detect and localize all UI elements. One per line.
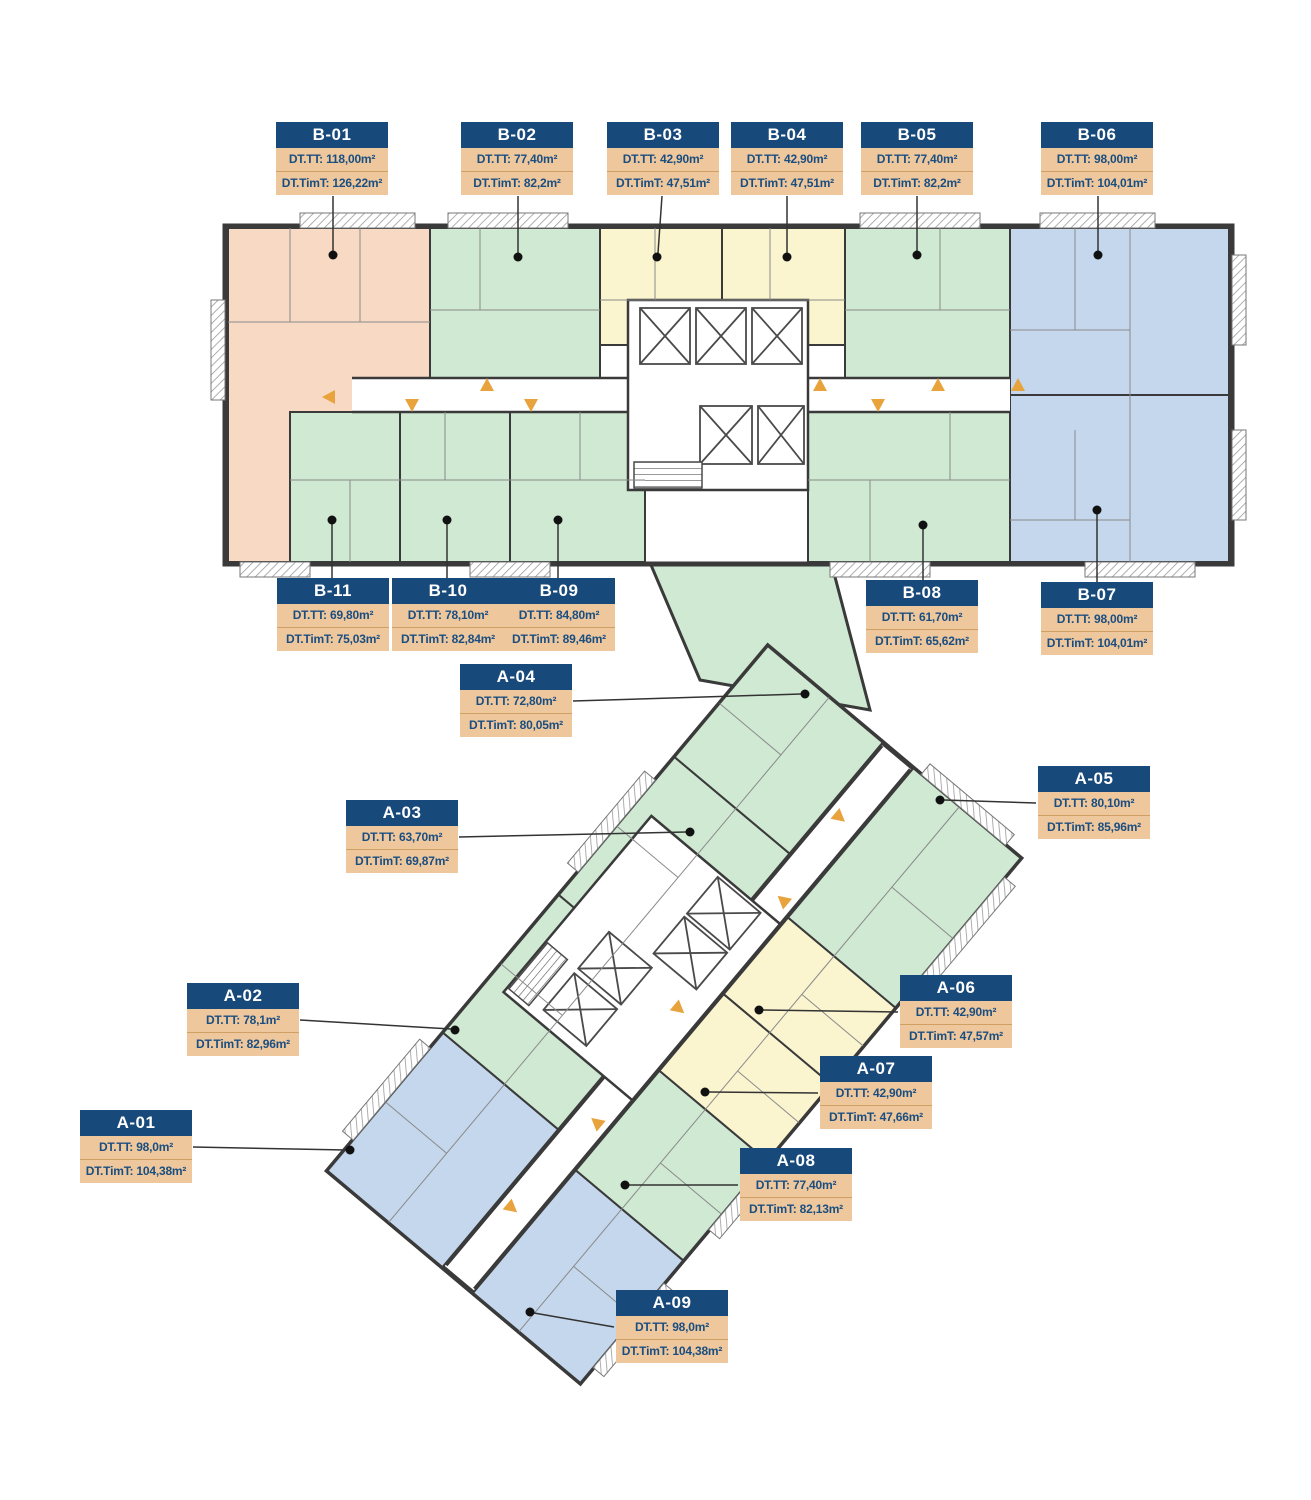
unit-area-tim: DT.TimT: 126,22m²: [276, 171, 388, 195]
unit-area-tim: DT.TimT: 82,96m²: [187, 1032, 299, 1056]
unit-area-tim: DT.TimT: 104,01m²: [1041, 631, 1153, 655]
unit-label-a04: A-04 DT.TT: 72,80m² DT.TimT: 80,05m²: [460, 664, 572, 737]
unit-label-b09: B-09 DT.TT: 84,80m² DT.TimT: 89,46m²: [503, 578, 615, 651]
unit-area-tt: DT.TT: 77,40m²: [861, 148, 973, 171]
unit-id: B-06: [1041, 122, 1153, 148]
stairs-area-b: [634, 462, 702, 488]
unit-area-tim: DT.TimT: 104,38m²: [616, 1339, 728, 1363]
unit-area-tt: DT.TT: 42,90m²: [731, 148, 843, 171]
unit-label-b08: B-08 DT.TT: 61,70m² DT.TimT: 65,62m²: [866, 580, 978, 653]
unit-area-tim: DT.TimT: 89,46m²: [503, 627, 615, 651]
unit-area-tim: DT.TimT: 69,87m²: [346, 849, 458, 873]
unit-shape-b07: [1010, 395, 1229, 562]
unit-area-tt: DT.TT: 98,00m²: [1041, 148, 1153, 171]
unit-area-tt: DT.TT: 98,0m²: [616, 1316, 728, 1339]
unit-shape-b10: [400, 412, 510, 562]
unit-area-tim: DT.TimT: 75,03m²: [277, 627, 389, 651]
unit-id: A-05: [1038, 766, 1150, 792]
unit-area-tt: DT.TT: 80,10m²: [1038, 792, 1150, 815]
unit-area-tim: DT.TimT: 82,2m²: [461, 171, 573, 195]
unit-label-a01: A-01 DT.TT: 98,0m² DT.TimT: 104,38m²: [80, 1110, 192, 1183]
unit-label-a09: A-09 DT.TT: 98,0m² DT.TimT: 104,38m²: [616, 1290, 728, 1363]
unit-area-tim: DT.TimT: 47,51m²: [731, 171, 843, 195]
unit-id: B-10: [392, 578, 504, 604]
unit-id: A-02: [187, 983, 299, 1009]
unit-area-tt: DT.TT: 78,10m²: [392, 604, 504, 627]
unit-id: A-08: [740, 1148, 852, 1174]
unit-shape-b06: [1010, 228, 1229, 395]
unit-area-tt: DT.TT: 42,90m²: [820, 1082, 932, 1105]
unit-shape-b09: [510, 412, 645, 562]
floor-plan-page: B-01 DT.TT: 118,00m² DT.TimT: 126,22m² B…: [0, 0, 1311, 1500]
elevator-core-b: [628, 300, 808, 490]
unit-label-b06: B-06 DT.TT: 98,00m² DT.TimT: 104,01m²: [1041, 122, 1153, 195]
unit-id: B-01: [276, 122, 388, 148]
unit-area-tt: DT.TT: 118,00m²: [276, 148, 388, 171]
unit-label-b01: B-01 DT.TT: 118,00m² DT.TimT: 126,22m²: [276, 122, 388, 195]
unit-area-tim: DT.TimT: 82,84m²: [392, 627, 504, 651]
unit-area-tt: DT.TT: 98,0m²: [80, 1136, 192, 1159]
unit-id: A-09: [616, 1290, 728, 1316]
unit-label-b11: B-11 DT.TT: 69,80m² DT.TimT: 75,03m²: [277, 578, 389, 651]
unit-shape-b11: [290, 412, 400, 562]
unit-label-b04: B-04 DT.TT: 42,90m² DT.TimT: 47,51m²: [731, 122, 843, 195]
unit-id: B-05: [861, 122, 973, 148]
unit-area-tim: DT.TimT: 85,96m²: [1038, 815, 1150, 839]
unit-id: B-11: [277, 578, 389, 604]
unit-id: B-08: [866, 580, 978, 606]
unit-shape-b02: [430, 228, 600, 378]
unit-id: B-07: [1041, 582, 1153, 608]
unit-label-a05: A-05 DT.TT: 80,10m² DT.TimT: 85,96m²: [1038, 766, 1150, 839]
unit-id: B-09: [503, 578, 615, 604]
block-b: [211, 213, 1246, 577]
unit-area-tt: DT.TT: 63,70m²: [346, 826, 458, 849]
unit-id: B-02: [461, 122, 573, 148]
unit-id: B-03: [607, 122, 719, 148]
unit-area-tim: DT.TimT: 80,05m²: [460, 713, 572, 737]
unit-area-tt: DT.TT: 98,00m²: [1041, 608, 1153, 631]
unit-area-tt: DT.TT: 69,80m²: [277, 604, 389, 627]
unit-area-tt: DT.TT: 78,1m²: [187, 1009, 299, 1032]
unit-area-tt: DT.TT: 42,90m²: [607, 148, 719, 171]
unit-label-b03: B-03 DT.TT: 42,90m² DT.TimT: 47,51m²: [607, 122, 719, 195]
unit-label-b10: B-10 DT.TT: 78,10m² DT.TimT: 82,84m²: [392, 578, 504, 651]
unit-area-tim: DT.TimT: 104,38m²: [80, 1159, 192, 1183]
unit-area-tt: DT.TT: 61,70m²: [866, 606, 978, 629]
unit-id: A-06: [900, 975, 1012, 1001]
unit-area-tt: DT.TT: 84,80m²: [503, 604, 615, 627]
unit-area-tt: DT.TT: 42,90m²: [900, 1001, 1012, 1024]
unit-label-a02: A-02 DT.TT: 78,1m² DT.TimT: 82,96m²: [187, 983, 299, 1056]
unit-area-tt: DT.TT: 72,80m²: [460, 690, 572, 713]
unit-id: A-03: [346, 800, 458, 826]
unit-area-tim: DT.TimT: 65,62m²: [866, 629, 978, 653]
unit-shape-b08: [808, 412, 1010, 562]
unit-label-b02: B-02 DT.TT: 77,40m² DT.TimT: 82,2m²: [461, 122, 573, 195]
unit-area-tim: DT.TimT: 47,66m²: [820, 1105, 932, 1129]
unit-label-a06: A-06 DT.TT: 42,90m² DT.TimT: 47,57m²: [900, 975, 1012, 1048]
floor-plan-drawing: [0, 0, 1311, 1500]
unit-id: A-07: [820, 1056, 932, 1082]
unit-id: A-01: [80, 1110, 192, 1136]
unit-shape-b05: [845, 228, 1010, 378]
unit-id: B-04: [731, 122, 843, 148]
unit-label-a08: A-08 DT.TT: 77,40m² DT.TimT: 82,13m²: [740, 1148, 852, 1221]
unit-area-tim: DT.TimT: 47,51m²: [607, 171, 719, 195]
unit-label-a03: A-03 DT.TT: 63,70m² DT.TimT: 69,87m²: [346, 800, 458, 873]
unit-area-tim: DT.TimT: 47,57m²: [900, 1024, 1012, 1048]
unit-label-b05: B-05 DT.TT: 77,40m² DT.TimT: 82,2m²: [861, 122, 973, 195]
unit-label-a07: A-07 DT.TT: 42,90m² DT.TimT: 47,66m²: [820, 1056, 932, 1129]
unit-area-tt: DT.TT: 77,40m²: [740, 1174, 852, 1197]
unit-area-tim: DT.TimT: 82,13m²: [740, 1197, 852, 1221]
unit-id: A-04: [460, 664, 572, 690]
unit-area-tt: DT.TT: 77,40m²: [461, 148, 573, 171]
unit-label-b07: B-07 DT.TT: 98,00m² DT.TimT: 104,01m²: [1041, 582, 1153, 655]
unit-area-tim: DT.TimT: 104,01m²: [1041, 171, 1153, 195]
unit-area-tim: DT.TimT: 82,2m²: [861, 171, 973, 195]
